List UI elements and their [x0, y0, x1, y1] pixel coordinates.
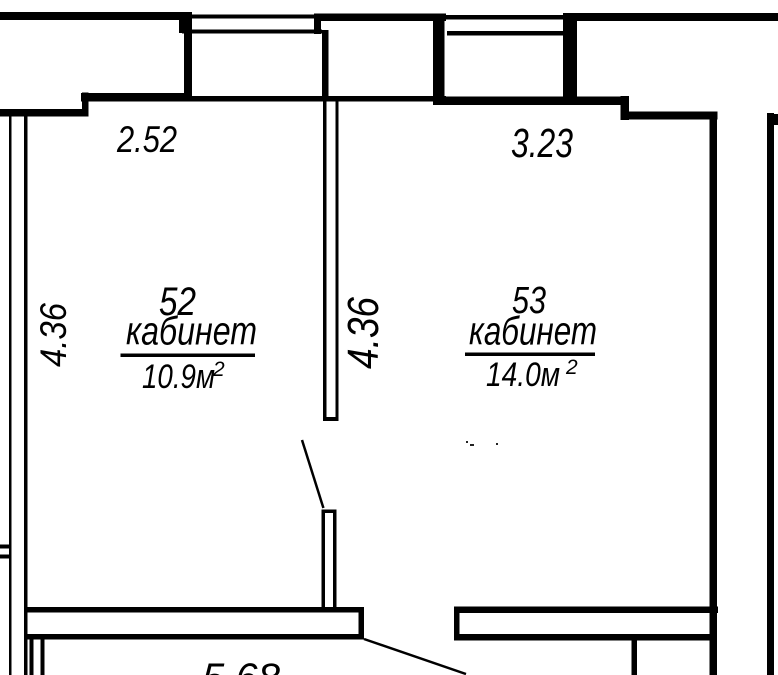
svg-text:14.0м: 14.0м — [486, 356, 560, 394]
svg-text:5.68: 5.68 — [202, 656, 281, 675]
svg-text:кабинет: кабинет — [469, 310, 597, 354]
svg-text:4.36: 4.36 — [33, 303, 74, 367]
svg-text:4.36: 4.36 — [339, 297, 388, 369]
svg-text:3.23: 3.23 — [511, 120, 573, 166]
svg-text:10.9м: 10.9м — [142, 358, 215, 396]
svg-text:2: 2 — [212, 358, 225, 381]
svg-text:кабинет: кабинет — [126, 310, 257, 354]
svg-text:2: 2 — [565, 356, 578, 379]
svg-text:2.52: 2.52 — [116, 119, 177, 160]
